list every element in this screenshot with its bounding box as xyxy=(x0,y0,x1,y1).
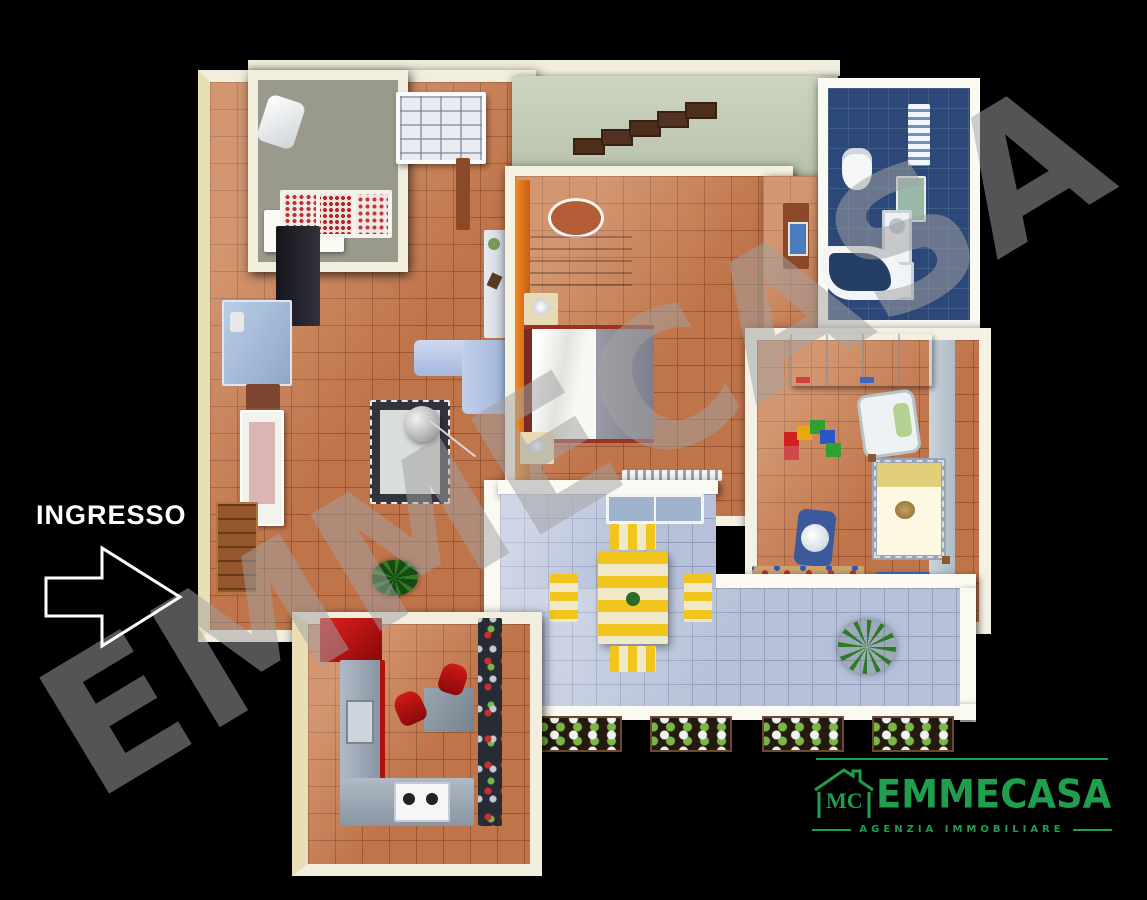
stroller xyxy=(793,508,837,568)
ironing-pad xyxy=(249,422,275,504)
children-wardrobe xyxy=(790,334,932,386)
terrace-wall-right xyxy=(960,588,976,722)
anteroom-cabinet xyxy=(783,203,809,269)
entrance-arrow-icon xyxy=(40,538,190,656)
towel-radiator xyxy=(908,104,930,166)
bedside-lamp xyxy=(529,438,545,454)
flower-box xyxy=(762,716,844,752)
flower-box xyxy=(650,716,732,752)
terrace-wall-top-left xyxy=(498,480,718,494)
double-bed xyxy=(524,325,654,443)
table-centerpiece xyxy=(626,592,640,606)
kitchen-table xyxy=(424,688,474,732)
stove xyxy=(394,782,450,822)
palm-plant xyxy=(838,620,896,674)
desk-lamp xyxy=(230,312,244,332)
entrance-label: INGRESSO xyxy=(36,500,187,531)
french-doors xyxy=(606,494,704,524)
logo-tagline: AGENZIA IMMOBILIARE xyxy=(851,824,1072,835)
logo-monogram: MC xyxy=(826,788,862,814)
crib-pillow xyxy=(877,463,941,487)
toilet xyxy=(842,148,872,190)
terrace-table xyxy=(598,552,668,644)
burner xyxy=(403,793,415,805)
bathtub-basin xyxy=(829,253,891,291)
crib-post xyxy=(942,556,950,564)
terrace-chair-bottom xyxy=(610,646,656,672)
tagline-rule-left xyxy=(812,829,851,831)
terrace-chair-right xyxy=(684,574,712,622)
high-chair-seat xyxy=(892,402,913,438)
floorplan-scene: EMMECASA INGRESSO MC EMMECASA AGENZIA IM… xyxy=(0,0,1147,900)
tagline-rule-right xyxy=(1073,829,1112,831)
flower-box xyxy=(540,716,622,752)
nightstand-bottom xyxy=(520,432,554,464)
vase-plant xyxy=(488,238,500,250)
door-pane xyxy=(609,497,656,521)
terrace-chair-left xyxy=(550,574,578,622)
entrance-door xyxy=(216,502,258,594)
decor-panel xyxy=(356,194,388,234)
crib xyxy=(872,458,946,560)
logo-top-rule xyxy=(816,758,1108,760)
flower-box xyxy=(872,716,954,752)
nightstand-top xyxy=(524,293,558,325)
wardrobe-knob xyxy=(796,377,810,383)
bed-sheet xyxy=(532,329,596,439)
logo-house-icon: MC xyxy=(812,766,876,822)
terrace-chair-top xyxy=(610,524,656,550)
ornament-bird xyxy=(487,272,503,289)
burner xyxy=(426,793,438,805)
stroller-canopy xyxy=(800,523,831,554)
wardrobe-knob xyxy=(860,377,874,383)
bookshelf xyxy=(396,92,486,164)
kitchen-counter-left xyxy=(340,660,385,782)
terrace-wall-top-right xyxy=(716,574,976,588)
kitchen-sink xyxy=(346,700,374,744)
bedroom-door-open xyxy=(456,158,470,230)
headboard xyxy=(524,329,532,439)
kitchen-upper-cabinet-red xyxy=(320,618,382,662)
sink-basin xyxy=(889,218,905,234)
kitchen-shelf-rack xyxy=(478,618,502,826)
agency-logo: MC EMMECASA AGENZIA IMMOBILIARE xyxy=(812,758,1112,835)
bed-blanket xyxy=(596,329,654,439)
crib-post xyxy=(868,454,876,462)
teddy-bear xyxy=(895,501,915,519)
bedside-lamp xyxy=(533,299,549,315)
logo-brand-text: EMMECASA xyxy=(876,771,1111,816)
framed-picture xyxy=(788,222,808,256)
high-chair xyxy=(856,388,922,459)
dresser xyxy=(530,236,632,286)
wall-mirror-oval xyxy=(548,198,604,238)
door-pane xyxy=(656,497,701,521)
decor-panel xyxy=(320,194,352,234)
